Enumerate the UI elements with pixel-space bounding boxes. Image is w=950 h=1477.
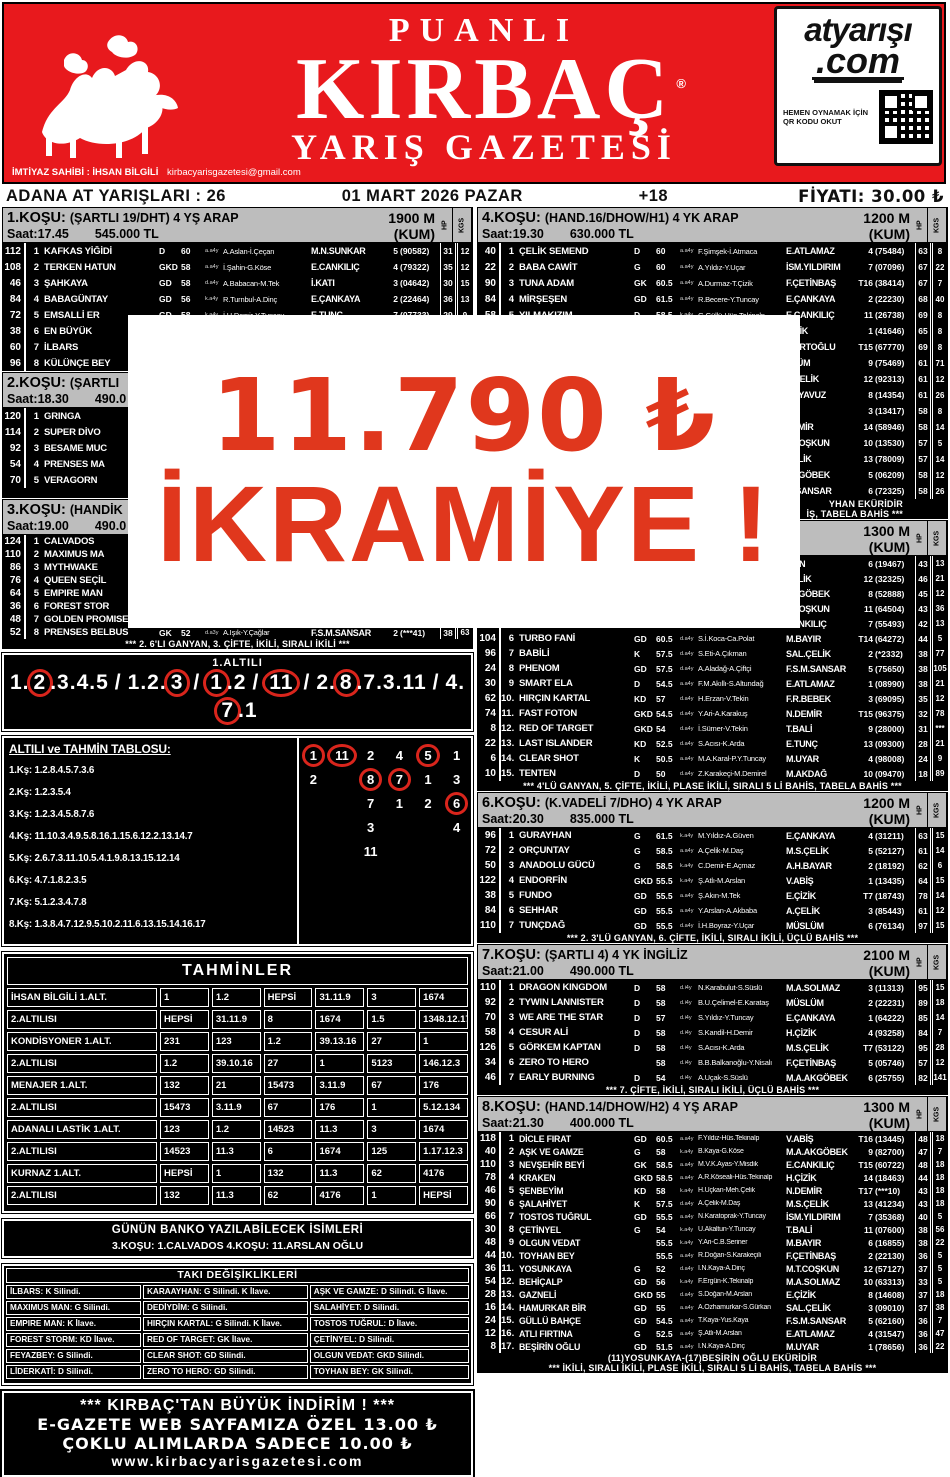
- horse-name: SMART ELA: [516, 678, 634, 689]
- tahmin-row: 2.ALTILISIHEPSİ31.11.9816741.51348.12.17: [7, 1010, 468, 1029]
- horse-no: 1: [501, 982, 516, 993]
- tahmin-cell: 39.13.16: [315, 1032, 364, 1051]
- horse-jock: MÜSLÜM: [786, 998, 858, 1008]
- horse-name: HAMURKAR BİR: [516, 1303, 634, 1313]
- horse-st: 3: [858, 906, 875, 916]
- horse-code: d.a4y: [680, 651, 698, 657]
- horse-name: PHENOM: [516, 663, 634, 674]
- horse-name: ŞAHKAYA: [41, 278, 159, 289]
- edition-info-bar: ADANA AT YARIŞLARI : 26 01 MART 2026 PAZ…: [0, 186, 950, 206]
- horse-kg: 60.5: [656, 634, 680, 644]
- horse-pts: 62: [477, 691, 501, 706]
- horse-jock: T.BALİ: [786, 1225, 858, 1235]
- horse-name: BABAGÜNTAY: [41, 294, 159, 305]
- horse-tak: GD: [159, 294, 181, 304]
- horse-name: DİCLE FIRAT: [516, 1134, 634, 1144]
- registered-mark: ®: [676, 44, 690, 124]
- horse-no: 4: [26, 459, 41, 470]
- horse-tak: G: [634, 1264, 656, 1274]
- horse-row: 465ŞENBEYİMKD58k.a4yH.Uçkan-Meh.ÇelikN.D…: [477, 1184, 948, 1197]
- horse-form: (28000): [875, 724, 915, 734]
- race-surface: (KUM): [827, 226, 910, 242]
- race-time: Saat:17.45: [7, 227, 69, 241]
- horse-kg: 60.5: [656, 278, 680, 288]
- horse-jock: İSM.YILDIRIM: [786, 1212, 858, 1222]
- group-separator: /: [297, 671, 316, 694]
- horse-pts: 108: [2, 259, 26, 275]
- horse-tak: GKD: [634, 709, 656, 719]
- qr-code-icon: [879, 90, 933, 144]
- horse-own: Ü.Akaltun-Y.Tuncay: [698, 1226, 786, 1233]
- horse-tak: G: [634, 846, 656, 856]
- horse-form: (***10): [875, 1186, 915, 1196]
- horse-kgs: 18: [930, 1184, 947, 1197]
- horse-own: A.R.Köseali-Hüs.Tekinalp: [698, 1174, 786, 1181]
- horse-name: LAST ISLANDER: [516, 738, 634, 749]
- leg-column: 471: [385, 744, 414, 944]
- horse-row: 1224ENDORFİNGKD55.5k.a4yŞ.Atlı-M.ArslanV…: [477, 873, 948, 888]
- tahmin-cell: 176: [315, 1098, 364, 1117]
- horse-no: 3: [501, 1159, 516, 1170]
- horse-form: (22464): [400, 294, 440, 304]
- horse-kgs: 18: [930, 1171, 947, 1184]
- altili-number: 7: [363, 671, 376, 694]
- tahmin-cell: 1.2: [212, 988, 261, 1007]
- horse-code: a.a4y: [680, 756, 698, 762]
- tahmin-row: 2.ALTILISI154733.11.96717615.12.134: [7, 1098, 468, 1117]
- race-bet-note: (11)YOSUNKAYA-(17)BEŞİRİN OĞLU EKÜRİDİR: [477, 1353, 948, 1363]
- horse-tak: G: [634, 861, 656, 871]
- horse-form: (22230): [875, 294, 915, 304]
- horse-row: 1101DRAGON KINGDOMD58d.i4yN.Karabulut-S.…: [477, 980, 948, 995]
- hp-column-header: HP: [913, 208, 928, 242]
- tahmin-cell: 39.10.16: [212, 1054, 261, 1073]
- tahmin-keg-list: ALTILI ve TAHMİN TABLOSU: 1.Kş: 1.2.8.4.…: [4, 738, 299, 944]
- horse-kg: 55.5: [656, 1238, 680, 1248]
- horse-tak: KD: [634, 1186, 656, 1196]
- horse-kgs: 12: [930, 903, 947, 918]
- horse-hp: 58: [915, 467, 930, 483]
- horse-st: 13: [858, 1199, 875, 1209]
- tahmin-cell: 6: [264, 1142, 313, 1161]
- race-time: Saat:18.30: [7, 392, 69, 406]
- horse-code: k.a4y: [680, 833, 698, 839]
- horse-jock: M.BAYIR: [786, 1238, 858, 1248]
- horse-own: İ.Sümer-V.Tekin: [698, 724, 786, 733]
- horse-code: d.i4y: [680, 985, 698, 991]
- horse-no: 1: [501, 830, 516, 841]
- tipster-name: KONDİSYONER 1.ALT.: [7, 1032, 157, 1051]
- horse-form: (57127): [875, 1264, 915, 1274]
- race-distance-m: 1200 M: [827, 795, 910, 811]
- race-time-line: Saat:19.30630.000 TL: [482, 227, 827, 241]
- horse-kgs: 14: [930, 888, 947, 903]
- horse-jock: H.ÇİZİK: [786, 1173, 858, 1183]
- horse-kgs: 21: [930, 571, 947, 586]
- horse-tak: GD: [634, 664, 656, 674]
- horse-pts: 78: [477, 1171, 501, 1184]
- horse-no: 15.: [501, 768, 516, 779]
- leg-number-circled: 1: [302, 744, 325, 767]
- horse-jock: E.ATLAMAZ: [786, 679, 858, 689]
- group-separator: /: [109, 671, 128, 694]
- horse-code: k.a4y: [680, 1188, 698, 1194]
- keg-line: 8.Kş: 1.3.8.4.7.12.9.5.10.2.11.6.13.15.1…: [9, 914, 297, 936]
- horse-hp: 58: [915, 419, 930, 435]
- tipster-name: ADANALI LASTİK 1.ALT.: [7, 1120, 157, 1139]
- horse-row: 584CESUR ALİD58d.i4yS.Kandil-H.DemirH.Çİ…: [477, 1025, 948, 1040]
- horse-pts: 84: [477, 291, 501, 307]
- horse-kgs: 5: [930, 1275, 947, 1288]
- horse-row: 1082TERKEN HATUNGKD58a.a4yİ.Şahin-G.Köse…: [2, 259, 473, 275]
- horse-jock: E.CANKILIÇ: [786, 1160, 858, 1170]
- horse-kg: 58: [181, 278, 205, 288]
- horse-form: (98008): [875, 754, 915, 764]
- horse-pts: 84: [477, 903, 501, 918]
- horse-row: 467EARLY BURNINGD54d.i4yA.Uçak-S.SüslüM.…: [477, 1070, 948, 1085]
- race-distance-m: 1900 M: [352, 210, 435, 226]
- horse-no: 3: [501, 278, 516, 289]
- horse-kgs: 13: [930, 616, 947, 631]
- horse-own: S.Eti-A.Çıkman: [698, 649, 786, 658]
- race-distance-m: 1300 M: [827, 523, 910, 539]
- tahmin-cell: 27: [367, 1032, 416, 1051]
- horse-own: A.Işık-Y.Çağlar: [223, 628, 311, 637]
- race-distance: 1200 M(KUM): [827, 793, 913, 827]
- horse-name: GAZNELİ: [516, 1290, 634, 1300]
- tahmin-cell: 31.11.9: [315, 988, 364, 1007]
- horse-st: 5: [858, 1058, 875, 1068]
- horse-pts: 72: [477, 843, 501, 858]
- horse-code: a.a4y: [680, 1331, 698, 1337]
- imprint-owner: İMTİYAZ SAHİBİ : İHSAN BİLGİLİ: [12, 167, 158, 178]
- horse-tak: K: [634, 649, 656, 659]
- promo-headline: *** KIRBAÇ'TAN BÜYÜK İNDİRİM ! ***: [4, 1397, 471, 1415]
- taki-change-cell: FEYAZBEY: G Silindi.: [6, 1349, 141, 1363]
- horse-own: M.A.Karal-P.Y.Tuncay: [698, 754, 786, 763]
- horse-own: T.Kaya-Yus.Kaya: [698, 1317, 786, 1324]
- horse-kgs: 7: [930, 1314, 947, 1327]
- leg-column: 1364: [442, 744, 471, 944]
- horse-hp: 57: [915, 1055, 930, 1070]
- race-time-line: Saat:21.30400.000 TL: [482, 1116, 827, 1130]
- horse-hp: 37: [915, 1301, 930, 1314]
- altili-number: 2: [316, 671, 329, 694]
- horse-st: 1: [858, 326, 875, 336]
- horse-row: 722ORÇUNTAYG58.5a.a4yA.Çelik-M.DaşM.S.ÇE…: [477, 843, 948, 858]
- tahmin-cell: 1674: [315, 1142, 364, 1161]
- horse-no: 12.: [501, 1276, 516, 1287]
- horse-kg: 61.5: [656, 831, 680, 841]
- tahmin-cell: 132: [160, 1186, 209, 1205]
- horse-no: 6: [501, 1198, 516, 1209]
- horse-form: (90582): [400, 246, 440, 256]
- race-number: 8.KOŞU:: [482, 1099, 541, 1115]
- taki-change-cell: RED OF TARGET: GK İlave.: [143, 1333, 308, 1347]
- horse-row: 1181DİCLE FIRATGD60.5a.a4yF.Yıldız-Hüs.T…: [477, 1132, 948, 1145]
- horse-own: S.Acısı-K.Arda: [698, 739, 786, 748]
- horse-kgs: 7: [930, 1145, 947, 1158]
- horse-code: d.a4y: [680, 1201, 698, 1207]
- horse-hp: 43: [915, 601, 930, 616]
- horse-tak: G: [634, 1225, 656, 1235]
- horse-st: 1: [858, 876, 875, 886]
- leg-column: 512: [414, 744, 443, 944]
- horse-hp: 36: [440, 291, 455, 307]
- horse-hp: 61: [915, 371, 930, 387]
- horse-hp: 44: [915, 631, 930, 646]
- race-title-line: 1.KOŞU:(ŞARTLI 19/DHT) 4 YŞ ARAP: [7, 209, 352, 227]
- horse-kg: 54.5: [656, 709, 680, 719]
- horse-form: (11313): [875, 983, 915, 993]
- race-surface: (KUM): [352, 226, 435, 242]
- kgs-column-header: KGS: [928, 793, 947, 827]
- horse-jock: E.ATLAMAZ: [786, 246, 858, 256]
- horse-row: 703WE ARE THE STARD57d.i4yS.Yıldız-Y.Tun…: [477, 1010, 948, 1025]
- tahmin-cell: 1674: [315, 1010, 364, 1029]
- horse-hp: 57: [915, 435, 930, 451]
- horse-pts: 60: [2, 339, 26, 355]
- horse-hp: 48: [915, 1158, 930, 1171]
- race-bet-note: *** İKİLİ, SIRALI İKİLİ, PLASE İKİLİ, SI…: [477, 1363, 948, 1373]
- horse-own: H.Uçkan-Meh.Çelik: [698, 1187, 786, 1194]
- horse-form: (31211): [875, 831, 915, 841]
- horse-st: 6: [858, 921, 875, 931]
- horse-no: 1: [501, 246, 516, 257]
- horse-jock: M.BAYIR: [786, 634, 858, 644]
- horse-jock: E.ÇİZİK: [786, 891, 858, 901]
- horse-st: 6: [858, 1073, 875, 1083]
- horse-hp: 67: [915, 275, 930, 291]
- horse-row: 667TOSTOS TUĞRULGD55.5a.a4yN.Karatoprak-…: [477, 1210, 948, 1223]
- horse-no: 2: [501, 845, 516, 856]
- keg-line: 5.Kş: 2.6.7.3.11.10.5.4.1.9.8.13.15.12.1…: [9, 848, 297, 870]
- horse-kg: 57: [656, 694, 680, 704]
- horse-kg: 54.5: [656, 1316, 680, 1326]
- horse-code: k.a4y: [680, 1240, 698, 1246]
- horse-kgs: 26: [930, 387, 947, 403]
- leg-column: 12: [299, 744, 328, 944]
- horse-row: 922TYWIN LANNISTERD58d.i4yB.U.Çelimel-E.…: [477, 995, 948, 1010]
- horse-name: FUNDO: [516, 890, 634, 901]
- race-title-line: 8.KOŞU:(HAND.14/DHOW/H2) 4 YŞ ARAP: [482, 1098, 827, 1116]
- horse-name: KRAKEN: [516, 1173, 634, 1183]
- horse-no: 11.: [501, 1263, 516, 1274]
- horse-jock: T.BALİ: [786, 724, 858, 734]
- horse-form: (78656): [875, 1342, 915, 1352]
- tahmin-cell: 3.11.9: [315, 1076, 364, 1095]
- horse-kgs: 89: [930, 766, 947, 781]
- keg-line: 4.Kş: 11.10.3.4.9.5.8.16.1.15.6.12.2.13.…: [9, 826, 297, 848]
- horse-no: 4: [501, 875, 516, 886]
- horse-jock: M.AKDAĞ: [786, 769, 858, 779]
- horse-jock: M.S.ÇELİK: [786, 846, 858, 856]
- tahmin-cell: 1674: [419, 1120, 468, 1139]
- horse-kgs: 26: [930, 483, 947, 499]
- horse-st: 13: [858, 739, 875, 749]
- horse-kgs: 12: [930, 1055, 947, 1070]
- horse-own: C.Demir-E.Açmaz: [698, 861, 786, 870]
- horse-jock: MÜSLÜM: [786, 921, 858, 931]
- horse-st: 5: [858, 1316, 875, 1326]
- horse-jock: M.A.SOLMAZ: [786, 1277, 858, 1287]
- horse-st: 11: [858, 604, 875, 614]
- altili-number: 2: [147, 671, 160, 694]
- horse-kg: 58.5: [656, 846, 680, 856]
- horse-kgs: 22: [930, 1236, 947, 1249]
- race-surface: (KUM): [827, 539, 910, 555]
- horse-kg: 55.5: [656, 1251, 680, 1261]
- race-purse: 490.0: [95, 392, 126, 406]
- horse-name: BEŞİRİN OĞLU: [516, 1342, 634, 1352]
- keg-line: 7.Kş: 5.1.2.3.4.7.8: [9, 892, 297, 914]
- horse-jock: SAL.ÇELİK: [786, 649, 858, 659]
- horse-code: a.a4y: [680, 848, 698, 854]
- horse-own: S.Yıldız-Y.Tuncay: [698, 1013, 786, 1022]
- horse-st: 7: [858, 262, 875, 272]
- horse-tak: D: [634, 1013, 656, 1023]
- horse-hp: 85: [915, 1010, 930, 1025]
- horse-row: 1107TUNÇDAĞGD55.5d.a4yİ.H.Boyraz-Y.UçarM…: [477, 918, 948, 933]
- race-header-info: 8.KOŞU:(HAND.14/DHOW/H2) 4 YŞ ARAPSaat:2…: [478, 1097, 827, 1131]
- horse-tak: D: [159, 246, 181, 256]
- taki-change-cell: OLGUN VEDAT: GKD Silindi.: [310, 1349, 469, 1363]
- leg-number: 4: [385, 744, 414, 768]
- horse-form: (64504): [875, 604, 915, 614]
- horse-pts: 96: [2, 355, 26, 371]
- horse-row: 812.RED OF TARGETGKD54d.a4yİ.Sümer-V.Tek…: [477, 721, 948, 736]
- altili-leg-grid: 12112873114715121364: [299, 738, 471, 944]
- horse-pts: 30: [477, 676, 501, 691]
- horse-no: 2: [26, 427, 41, 438]
- horse-kg: 54: [656, 724, 680, 734]
- horse-hp: 68: [915, 291, 930, 307]
- altili-sequence: 1.2.3.4.5/1.2.3/1.2/11/2.8.7.3.11/4.7.1: [4, 669, 471, 725]
- horse-hp: 32: [915, 706, 930, 721]
- horse-form: (41646): [875, 326, 915, 336]
- horse-jock: V.ABİŞ: [786, 1134, 858, 1144]
- horse-kgs: 18: [930, 1288, 947, 1301]
- leg-number-circled: 11: [327, 744, 357, 767]
- race-bet-note: *** 2. 3'LÜ GANYAN, 6. ÇİFTE, İKİLİ, SIR…: [477, 933, 948, 943]
- horse-own: N.Karabulut-S.Süslü: [698, 983, 786, 992]
- horse-row: 346ZERO TO HERO58d.i4yB.B.Balkanoğlu-Y.N…: [477, 1055, 948, 1070]
- horse-pts: 110: [477, 918, 501, 933]
- horse-kgs: 71: [930, 355, 947, 371]
- horse-st: 12: [858, 1264, 875, 1274]
- horse-kg: 58: [656, 983, 680, 993]
- horse-hp: 95: [915, 1040, 930, 1055]
- leg-number: 4: [442, 816, 471, 840]
- hp-column-header: HP: [438, 208, 453, 242]
- horse-code: d.i4y: [680, 1075, 698, 1081]
- tahmin-cell: HEPSİ: [264, 988, 313, 1007]
- tahmin-cell: 3: [367, 1120, 416, 1139]
- tahmin-row: 2.ALTILISI1.239.10.162715123146.12.3: [7, 1054, 468, 1073]
- horse-pts: 40: [477, 243, 501, 259]
- tahmin-cell: 5123: [367, 1054, 416, 1073]
- kgs-column-header: KGS: [928, 208, 947, 242]
- race-conditions: (HANDİK: [70, 503, 123, 517]
- horse-jock: F.R.BEBEK: [786, 694, 858, 704]
- tahmin-cell: 3.11.9: [212, 1098, 261, 1117]
- horse-pts: 110: [477, 980, 501, 995]
- horse-kgs: 12: [930, 371, 947, 387]
- tahmin-cell: 31.11.9: [212, 1010, 261, 1029]
- horse-name: WE ARE THE STAR: [516, 1012, 634, 1023]
- tahmin-row: İHSAN BİLGİLİ 1.ALT.11.2HEPSİ31.11.93167…: [7, 988, 468, 1007]
- horse-st: T7: [858, 1043, 875, 1053]
- horse-kg: 52.5: [656, 739, 680, 749]
- horse-code: a.a4y: [680, 248, 698, 254]
- horse-kgs: 38: [930, 1301, 947, 1314]
- horse-no: 13.: [501, 738, 516, 749]
- horse-name: HIRÇIN KARTAL: [516, 693, 634, 704]
- horse-kg: 58.5: [656, 1173, 680, 1183]
- tahmin-cell: HEPSİ: [160, 1164, 209, 1183]
- horse-st: 8: [858, 589, 875, 599]
- horse-row: 1216.ATLI FIRTINAG52.5a.a4yŞ.Atlı-M.Arsl…: [477, 1327, 948, 1340]
- kgs-column-header: KGS: [453, 208, 472, 242]
- prize-word: İKRAMİYE !: [157, 468, 771, 580]
- horse-name: ZERO TO HERO: [516, 1057, 634, 1068]
- horse-form: (16855): [875, 1238, 915, 1248]
- horse-jock: F.ÇETİNBAŞ: [786, 1251, 858, 1261]
- horse-no: 8: [26, 627, 41, 638]
- horse-code: a.a4y: [680, 280, 698, 286]
- horse-st: 5: [858, 846, 875, 856]
- horse-form: (79322): [400, 262, 440, 272]
- tahmin-cell: HEPSİ: [160, 1010, 209, 1029]
- tahminler-title: TAHMİNLER: [7, 957, 468, 985]
- horse-st: 9: [858, 1147, 875, 1157]
- horse-code: k.a4y: [680, 1227, 698, 1233]
- horse-hp: 97: [915, 918, 930, 933]
- horse-pts: 52: [2, 626, 26, 639]
- horse-kg: 60: [656, 262, 680, 272]
- horse-kgs: 13: [455, 291, 472, 307]
- horse-no: 7: [501, 1211, 516, 1222]
- horse-row: 503ANADOLU GÜCÜG58.5k.a4yC.Demir-E.Açmaz…: [477, 858, 948, 873]
- horse-code: d.i4y: [680, 1000, 698, 1006]
- horse-own: S.Doğan-M.Arslan: [698, 1291, 786, 1298]
- horse-code: a.a4y: [680, 908, 698, 914]
- masthead-kirbac: KIRBAÇ®: [296, 50, 672, 130]
- horse-kg: 57.5: [656, 649, 680, 659]
- horse-no: 7: [501, 920, 516, 931]
- horse-st: 6: [858, 486, 875, 496]
- horse-pts: 36: [477, 1262, 501, 1275]
- horse-code: a.a4y: [680, 1214, 698, 1220]
- taki-changes-table: TAKI DEĞİŞİKLİKLERİ İLBARS: K Silindi.KA…: [2, 1264, 473, 1385]
- horse-pts: 114: [2, 424, 26, 440]
- tipster-name: 2.ALTILISI: [7, 1098, 157, 1117]
- horse-form: (08990): [875, 679, 915, 689]
- tipster-name: 2.ALTILISI: [7, 1054, 157, 1073]
- horse-hp: 42: [915, 616, 930, 631]
- kgs-column-header: KGS: [928, 1097, 947, 1131]
- horse-tak: D: [634, 1028, 656, 1038]
- leg-number: 7: [356, 792, 385, 816]
- horse-jock: E.ÇANKAYA: [786, 294, 858, 304]
- horse-kgs: 15: [930, 918, 947, 933]
- horse-tak: D: [634, 983, 656, 993]
- horse-st: 3: [858, 983, 875, 993]
- horse-kg: 60: [181, 246, 205, 256]
- horse-no: 1: [26, 411, 41, 422]
- horse-row: 385FUNDOGD55.5a.a4yŞ.Akın-M.TekE.ÇİZİKT7…: [477, 888, 948, 903]
- tahmin-cell: 1.2: [212, 1120, 261, 1139]
